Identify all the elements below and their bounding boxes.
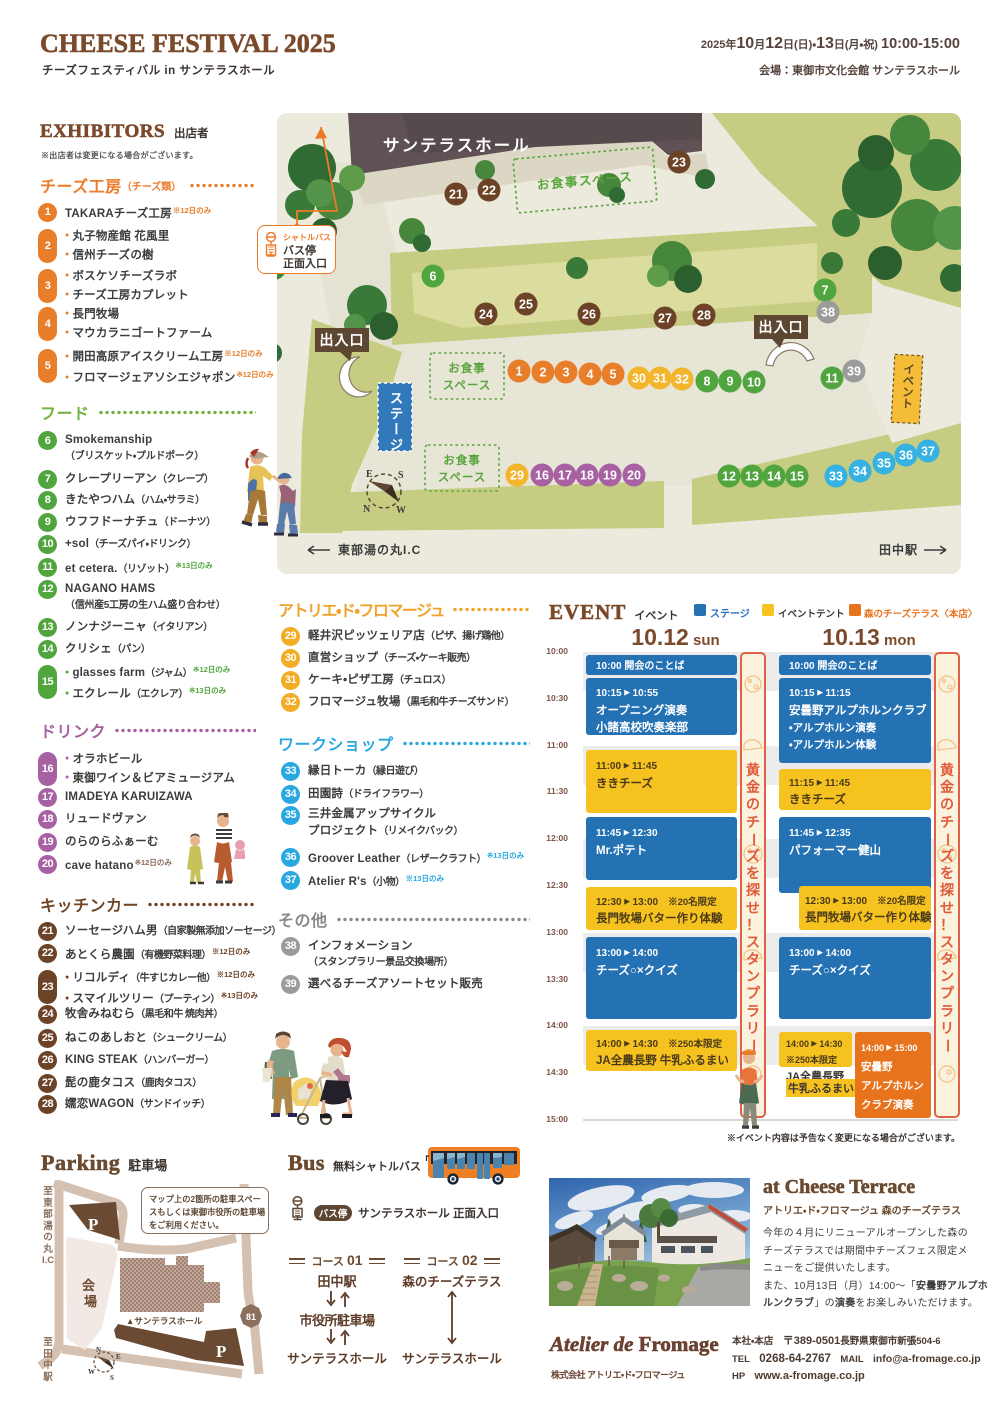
- svg-text:スペース: スペース: [438, 472, 487, 484]
- svg-text:1: 1: [516, 365, 523, 379]
- svg-text:7: 7: [822, 284, 829, 298]
- svg-text:21: 21: [449, 188, 463, 202]
- svg-text:32: 32: [675, 373, 689, 387]
- svg-text:37: 37: [921, 445, 935, 459]
- svg-text:会: 会: [82, 1278, 96, 1293]
- svg-text:12: 12: [722, 470, 736, 484]
- svg-text:P: P: [216, 1342, 226, 1361]
- svg-text:3: 3: [563, 366, 570, 380]
- svg-text:P: P: [88, 1215, 98, 1234]
- svg-text:▲サンテラスホール: ▲サンテラスホール: [126, 1316, 203, 1326]
- svg-text:28: 28: [697, 309, 711, 323]
- svg-text:9: 9: [727, 375, 734, 389]
- svg-text:E: E: [366, 469, 373, 480]
- svg-text:田中駅: 田中駅: [879, 542, 918, 557]
- svg-text:N: N: [363, 504, 371, 515]
- svg-text:16: 16: [535, 469, 549, 483]
- svg-text:19: 19: [603, 469, 617, 483]
- svg-text:23: 23: [672, 156, 686, 170]
- svg-text:27: 27: [658, 312, 672, 326]
- svg-text:出入口: 出入口: [759, 319, 804, 335]
- svg-text:25: 25: [519, 298, 533, 312]
- svg-text:W: W: [88, 1368, 95, 1376]
- svg-text:N: N: [96, 1346, 101, 1354]
- svg-text:13: 13: [745, 470, 759, 484]
- svg-text:場: 場: [84, 1294, 97, 1309]
- svg-text:36: 36: [899, 449, 913, 463]
- svg-text:2: 2: [540, 366, 547, 380]
- svg-text:お食事: お食事: [443, 453, 481, 467]
- svg-text:22: 22: [482, 184, 496, 198]
- svg-text:東部湯の丸I.C: 東部湯の丸I.C: [338, 542, 421, 557]
- svg-text:5: 5: [610, 368, 617, 382]
- svg-text:35: 35: [877, 457, 891, 471]
- svg-text:34: 34: [853, 465, 867, 479]
- svg-text:81: 81: [246, 1312, 256, 1322]
- svg-text:20: 20: [627, 469, 641, 483]
- svg-text:W: W: [396, 505, 406, 516]
- svg-text:30: 30: [632, 372, 646, 386]
- svg-text:スペース: スペース: [443, 380, 492, 392]
- svg-text:6: 6: [430, 270, 437, 284]
- svg-text:8: 8: [704, 375, 711, 389]
- svg-text:15: 15: [790, 470, 804, 484]
- svg-text:サンテラスホール: サンテラスホール: [383, 137, 531, 155]
- svg-text:S: S: [398, 470, 404, 481]
- svg-text:17: 17: [558, 469, 572, 483]
- svg-text:S: S: [110, 1374, 114, 1382]
- svg-text:33: 33: [829, 470, 843, 484]
- svg-text:24: 24: [479, 308, 493, 322]
- svg-text:18: 18: [580, 469, 594, 483]
- svg-text:26: 26: [582, 308, 596, 322]
- svg-text:出入口: 出入口: [320, 332, 365, 348]
- svg-text:4: 4: [587, 368, 594, 382]
- svg-text:10: 10: [747, 376, 761, 390]
- svg-text:お食事: お食事: [448, 361, 486, 375]
- svg-text:29: 29: [510, 469, 524, 483]
- svg-text:39: 39: [847, 365, 861, 379]
- svg-text:38: 38: [821, 306, 835, 320]
- svg-text:14: 14: [767, 470, 781, 484]
- svg-text:11: 11: [825, 372, 838, 386]
- svg-text:31: 31: [653, 372, 667, 386]
- svg-text:E: E: [116, 1353, 121, 1361]
- svg-text:ステージ: ステージ: [388, 391, 403, 453]
